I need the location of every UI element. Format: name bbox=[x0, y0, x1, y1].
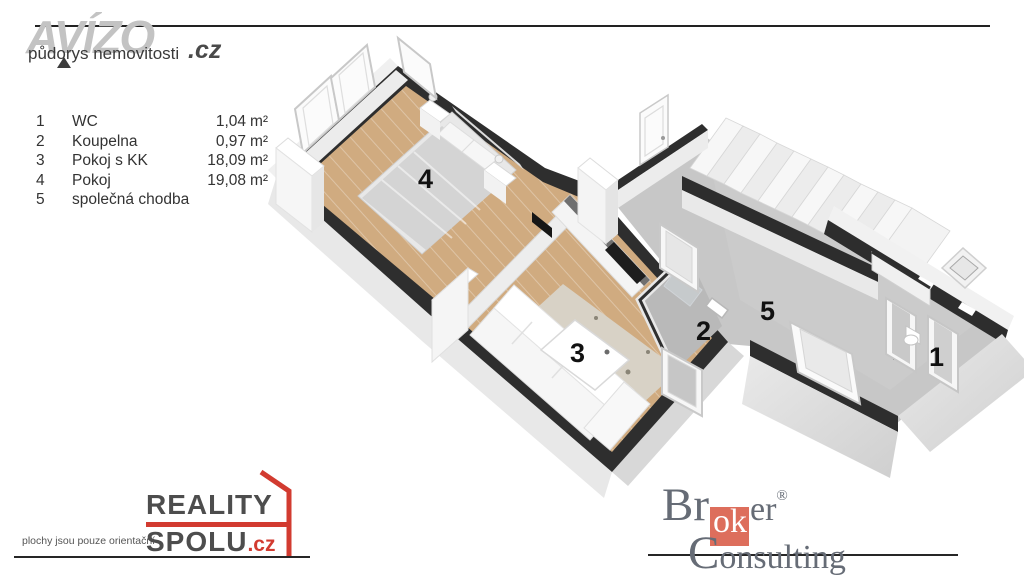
legend-name: Pokoj bbox=[72, 171, 206, 191]
legend-row: 4 Pokoj 19,08 m² bbox=[36, 171, 276, 191]
legend-unit: m² bbox=[250, 171, 276, 191]
legend-row: 2 Koupelna 0,97 m² bbox=[36, 132, 276, 152]
legend-unit bbox=[250, 190, 276, 210]
legend-num: 5 bbox=[36, 190, 72, 210]
broker-consulting-logo: Broker® Consulting bbox=[662, 482, 846, 576]
legend-row: 3 Pokoj s KK 18,09 m² bbox=[36, 151, 276, 171]
legend-num: 4 bbox=[36, 171, 72, 191]
broker-line2: Consulting bbox=[688, 530, 846, 576]
legend-num: 1 bbox=[36, 112, 72, 132]
reality-roof-icon bbox=[258, 468, 298, 560]
room-label-3: 3 bbox=[570, 338, 585, 368]
top-rule bbox=[35, 25, 990, 27]
legend-area bbox=[206, 190, 250, 210]
legend-area: 1,04 bbox=[206, 112, 250, 132]
avizo-logo-tld: .cz bbox=[188, 36, 221, 65]
page: 4 3 2 5 1 AVÍZO .cz půdorys nemovitosti … bbox=[0, 0, 1024, 576]
legend-name: Pokoj s KK bbox=[72, 151, 206, 171]
legend-name: Koupelna bbox=[72, 132, 206, 152]
legend-row: 5 společná chodba bbox=[36, 190, 276, 210]
legend-name: společná chodba bbox=[72, 190, 206, 210]
room-label-2: 2 bbox=[696, 316, 711, 346]
legend-num: 3 bbox=[36, 151, 72, 171]
legend-unit: m² bbox=[250, 112, 276, 132]
room-label-4: 4 bbox=[418, 164, 433, 194]
legend-row: 1 WC 1,04 m² bbox=[36, 112, 276, 132]
page-title: půdorys nemovitosti bbox=[28, 44, 179, 64]
legend-unit: m² bbox=[250, 132, 276, 152]
room-label-1: 1 bbox=[929, 342, 944, 372]
legend-area: 0,97 bbox=[206, 132, 250, 152]
registered-icon: ® bbox=[776, 488, 787, 504]
legend-num: 2 bbox=[36, 132, 72, 152]
disclaimer-note: plochy jsou pouze orientační bbox=[22, 535, 155, 547]
room-label-5: 5 bbox=[760, 296, 775, 326]
legend-unit: m² bbox=[250, 151, 276, 171]
legend-area: 18,09 bbox=[206, 151, 250, 171]
bottom-rule-left bbox=[14, 556, 310, 558]
legend-area: 19,08 bbox=[206, 171, 250, 191]
legend-name: WC bbox=[72, 112, 206, 132]
room-legend: 1 WC 1,04 m² 2 Koupelna 0,97 m² 3 Pokoj … bbox=[36, 112, 276, 210]
